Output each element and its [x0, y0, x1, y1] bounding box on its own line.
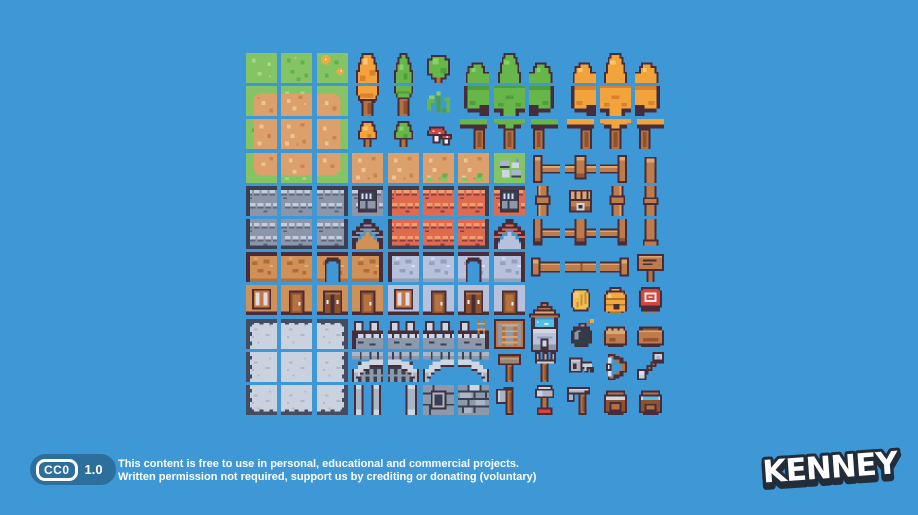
- tile-wall-gray-arch: [458, 252, 489, 282]
- tile-door-tan-a: [352, 285, 383, 315]
- tile-tree-top-green: [388, 53, 419, 83]
- tile-bow: [600, 352, 631, 382]
- tile-cluster-t-orange: [600, 53, 631, 83]
- tile-fence-corner-bl: [529, 219, 560, 249]
- tile-floor-l: [246, 352, 277, 382]
- tile-floor-tl: [246, 319, 277, 349]
- tile-cluster-tl-green: [458, 53, 489, 83]
- tile-cluster-tr-orange: [635, 53, 666, 83]
- cc0-version-label: 1.0: [85, 462, 103, 477]
- tile-cluster-mr-green: [529, 86, 560, 116]
- tile-dirt-bl: [246, 153, 277, 183]
- tile-roof-gray-t: [281, 186, 312, 216]
- tile-target: [635, 285, 666, 315]
- tile-roof-gray-bl: [246, 219, 277, 249]
- tile-grass-specks: [281, 53, 312, 83]
- tile-roof-orange-t: [423, 186, 454, 216]
- license-line-2: Written permission not required, support…: [118, 471, 536, 484]
- tile-grass-flowers: [317, 53, 348, 83]
- tile-pitchfork: [529, 352, 560, 382]
- tile-post-mid: [635, 186, 666, 216]
- tile-cluster-ml-green: [458, 86, 489, 116]
- tile-roof-orange-br: [458, 219, 489, 249]
- tile-cluster-mr-orange: [635, 86, 666, 116]
- asset-pack-preview: CC0 1.0 This content is free to use in p…: [0, 0, 918, 515]
- tile-cluster-bl-orange: [565, 119, 596, 149]
- tile-battlement-m: [423, 319, 454, 349]
- cc0-license-icon: CC0: [36, 459, 78, 481]
- tile-cluster-m-green: [494, 86, 525, 116]
- tile-cluster-t-green: [494, 53, 525, 83]
- tile-dormer-gray: [352, 186, 383, 216]
- kenney-logo: KENNEY KENNEY: [752, 436, 908, 506]
- tile-dirt-b: [281, 153, 312, 183]
- tile-dirt-l: [246, 119, 277, 149]
- tile-grass: [246, 53, 277, 83]
- tile-cluster-br-orange: [635, 119, 666, 149]
- tile-wall-tan-r: [352, 252, 383, 282]
- tile-dirt-c: [388, 153, 419, 183]
- tile-dirt-c: [352, 153, 383, 183]
- tile-battlement-l: [352, 319, 383, 349]
- tile-hammer: [494, 352, 525, 382]
- tile-roof-gray-tr: [317, 186, 348, 216]
- tile-axe: [494, 385, 525, 415]
- tile-chest: [565, 186, 596, 216]
- tile-floor-c: [281, 352, 312, 382]
- tile-floor-r: [317, 352, 348, 382]
- tile-cluster-tr-green: [529, 53, 560, 83]
- tile-roof-gray-br: [317, 219, 348, 249]
- cc0-badge: CC0 1.0: [30, 454, 116, 485]
- tile-beam-m: [565, 252, 596, 282]
- tile-battlement-r: [458, 319, 489, 349]
- tile-sign: [635, 252, 666, 282]
- tile-door-tan-b: [317, 285, 348, 315]
- tile-beam-l: [529, 252, 560, 282]
- tile-post-bottom: [635, 219, 666, 249]
- tile-cluster-tl-orange: [565, 53, 596, 83]
- tile-fence-corner-br: [600, 219, 631, 249]
- tile-fence-corner-tl: [529, 153, 560, 183]
- tile-fence-corner-tr: [600, 153, 631, 183]
- tile-key: [565, 352, 596, 382]
- tile-battlement-m: [388, 319, 419, 349]
- tile-dirt-br: [317, 153, 348, 183]
- tile-dirt-tl: [246, 86, 277, 116]
- tile-pillar-pair: [352, 385, 383, 415]
- tile-floor-b: [281, 385, 312, 415]
- tile-stone-wall-brick: [458, 385, 489, 415]
- tile-fence-side-r: [600, 186, 631, 216]
- tile-cluster-b-orange: [600, 119, 631, 149]
- tile-bomb: [565, 319, 596, 349]
- tile-gable-gray: [352, 219, 383, 249]
- tile-bag: [600, 385, 631, 415]
- tile-window-tan: [246, 285, 277, 315]
- tile-mushrooms: [423, 119, 454, 149]
- tile-roof-orange-bl: [388, 219, 419, 249]
- tile-dirt-tuft: [458, 153, 489, 183]
- tile-fence-side-l: [529, 186, 560, 216]
- tile-post-top: [635, 153, 666, 183]
- tile-dirt-t: [281, 86, 312, 116]
- tile-tree-small-orange: [352, 119, 383, 149]
- tile-wall-tan-arch: [317, 252, 348, 282]
- tile-cluster-ml-orange: [565, 86, 596, 116]
- tile-roof-orange-tl: [388, 186, 419, 216]
- tile-gable-orange: [494, 219, 525, 249]
- tile-tree-small-green: [388, 119, 419, 149]
- tile-wall-tan-m: [281, 252, 312, 282]
- tile-shovel: [529, 385, 560, 415]
- tile-floor-br: [317, 385, 348, 415]
- tile-roof-orange-b: [423, 219, 454, 249]
- tile-wall-gray-l: [388, 252, 419, 282]
- tile-dirt-c: [281, 119, 312, 149]
- tile-fern: [423, 86, 454, 116]
- tile-stones-grass: [494, 153, 525, 183]
- tile-roof-gray-tl: [246, 186, 277, 216]
- tile-arrow: [635, 352, 666, 382]
- tile-cluster-m-orange: [600, 86, 631, 116]
- tile-sack: [600, 319, 631, 349]
- tile-cluster-bl-green: [458, 119, 489, 149]
- tile-fence-top: [565, 153, 596, 183]
- tile-window-gray: [388, 285, 419, 315]
- tile-floor-bl: [246, 385, 277, 415]
- tile-bag-open: [635, 385, 666, 415]
- tile-door-gray-a: [494, 285, 525, 315]
- tile-wall-gray-r: [494, 252, 525, 282]
- tile-dirt-tuft: [423, 153, 454, 183]
- tile-coin: [565, 285, 596, 315]
- tile-roof-orange-tr: [458, 186, 489, 216]
- tile-fence-bottom: [565, 219, 596, 249]
- tile-dirt-r: [317, 119, 348, 149]
- tile-floor-tr: [317, 319, 348, 349]
- tile-stone-wall-window: [423, 385, 454, 415]
- tile-door-tan-a: [281, 285, 312, 315]
- license-text: This content is free to use in personal,…: [118, 458, 536, 483]
- tile-ladder: [494, 319, 525, 349]
- tile-cluster-b-green: [494, 119, 525, 149]
- tile-basket: [635, 319, 666, 349]
- tile-floor-t: [281, 319, 312, 349]
- tile-arch-open-r: [458, 352, 489, 382]
- tile-beehive: [600, 285, 631, 315]
- tile-arch-open-l: [423, 352, 454, 382]
- tile-arch-closed-r: [388, 352, 419, 382]
- tile-pillar-single: [388, 385, 419, 415]
- tile-wall-tan-l: [246, 252, 277, 282]
- tile-tree-bottom-green: [388, 86, 419, 116]
- tile-beam-r: [600, 252, 631, 282]
- tile-tree-top-orange: [352, 53, 383, 83]
- tile-wall-gray-m: [423, 252, 454, 282]
- tile-scythe: [565, 385, 596, 415]
- tile-dormer-orange: [494, 186, 525, 216]
- tile-well: [529, 302, 560, 354]
- tile-bush-round: [423, 53, 454, 83]
- tile-door-gray-b: [458, 285, 489, 315]
- tile-tree-bottom-orange: [352, 86, 383, 116]
- tile-roof-gray-b: [281, 219, 312, 249]
- tile-cluster-br-green: [529, 119, 560, 149]
- tile-arch-closed-l: [352, 352, 383, 382]
- license-line-1: This content is free to use in personal,…: [118, 458, 536, 471]
- tile-dirt-tr: [317, 86, 348, 116]
- tile-door-gray-a: [423, 285, 454, 315]
